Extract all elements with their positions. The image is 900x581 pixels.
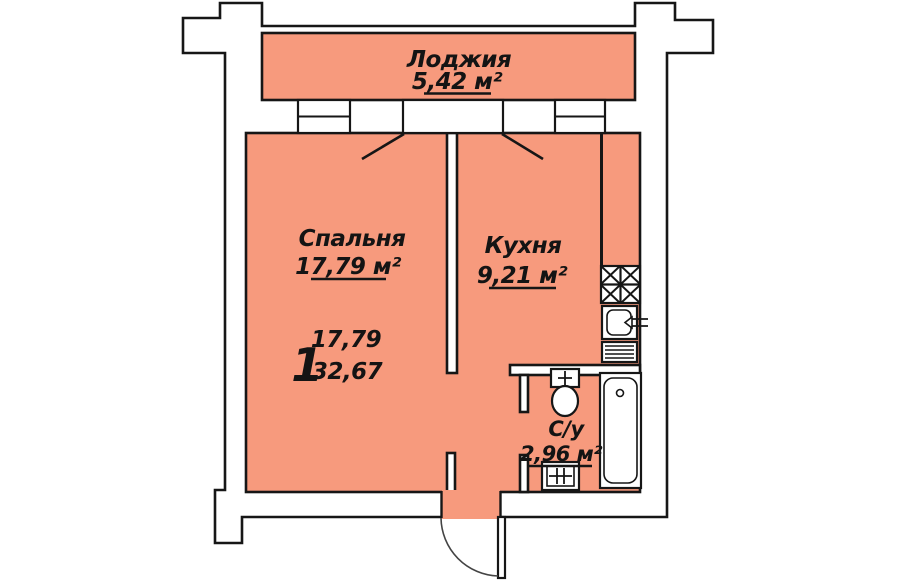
wall-bedroom-hall-stub	[447, 453, 455, 492]
floor-plan: Лоджия 5,42 м² Спальня 17,79 м² Кухня 9,…	[0, 0, 900, 581]
bathroom-label: С/у	[548, 417, 585, 441]
entrance-door-swing-arc	[441, 518, 498, 576]
wall-bedroom-kitchen	[447, 133, 457, 373]
stove	[602, 342, 637, 362]
bathroom-area: 2,96 м²	[520, 442, 603, 466]
stamp-living-area: 17,79	[311, 327, 381, 353]
bedroom-area: 17,79 м²	[295, 254, 401, 280]
entrance-opening	[442, 490, 500, 519]
loggia-area: 5,42 м²	[412, 69, 503, 95]
bathtub	[600, 373, 641, 488]
entrance-door-leaf	[498, 517, 505, 578]
bedroom-label: Спальня	[299, 226, 407, 252]
loggia-window-right	[555, 100, 605, 133]
kitchen-label: Кухня	[485, 233, 563, 259]
toilet	[551, 369, 579, 416]
loggia-window-left	[298, 100, 350, 133]
stamp-total-area: 32,67	[312, 359, 383, 385]
floor-plan-drawing: Лоджия 5,42 м² Спальня 17,79 м² Кухня 9,…	[0, 0, 900, 581]
balcony-door-block	[403, 100, 503, 133]
vent-shaft	[601, 266, 640, 303]
kitchen-area: 9,21 м²	[477, 263, 568, 289]
wall-bathroom-left-upper	[520, 375, 528, 412]
